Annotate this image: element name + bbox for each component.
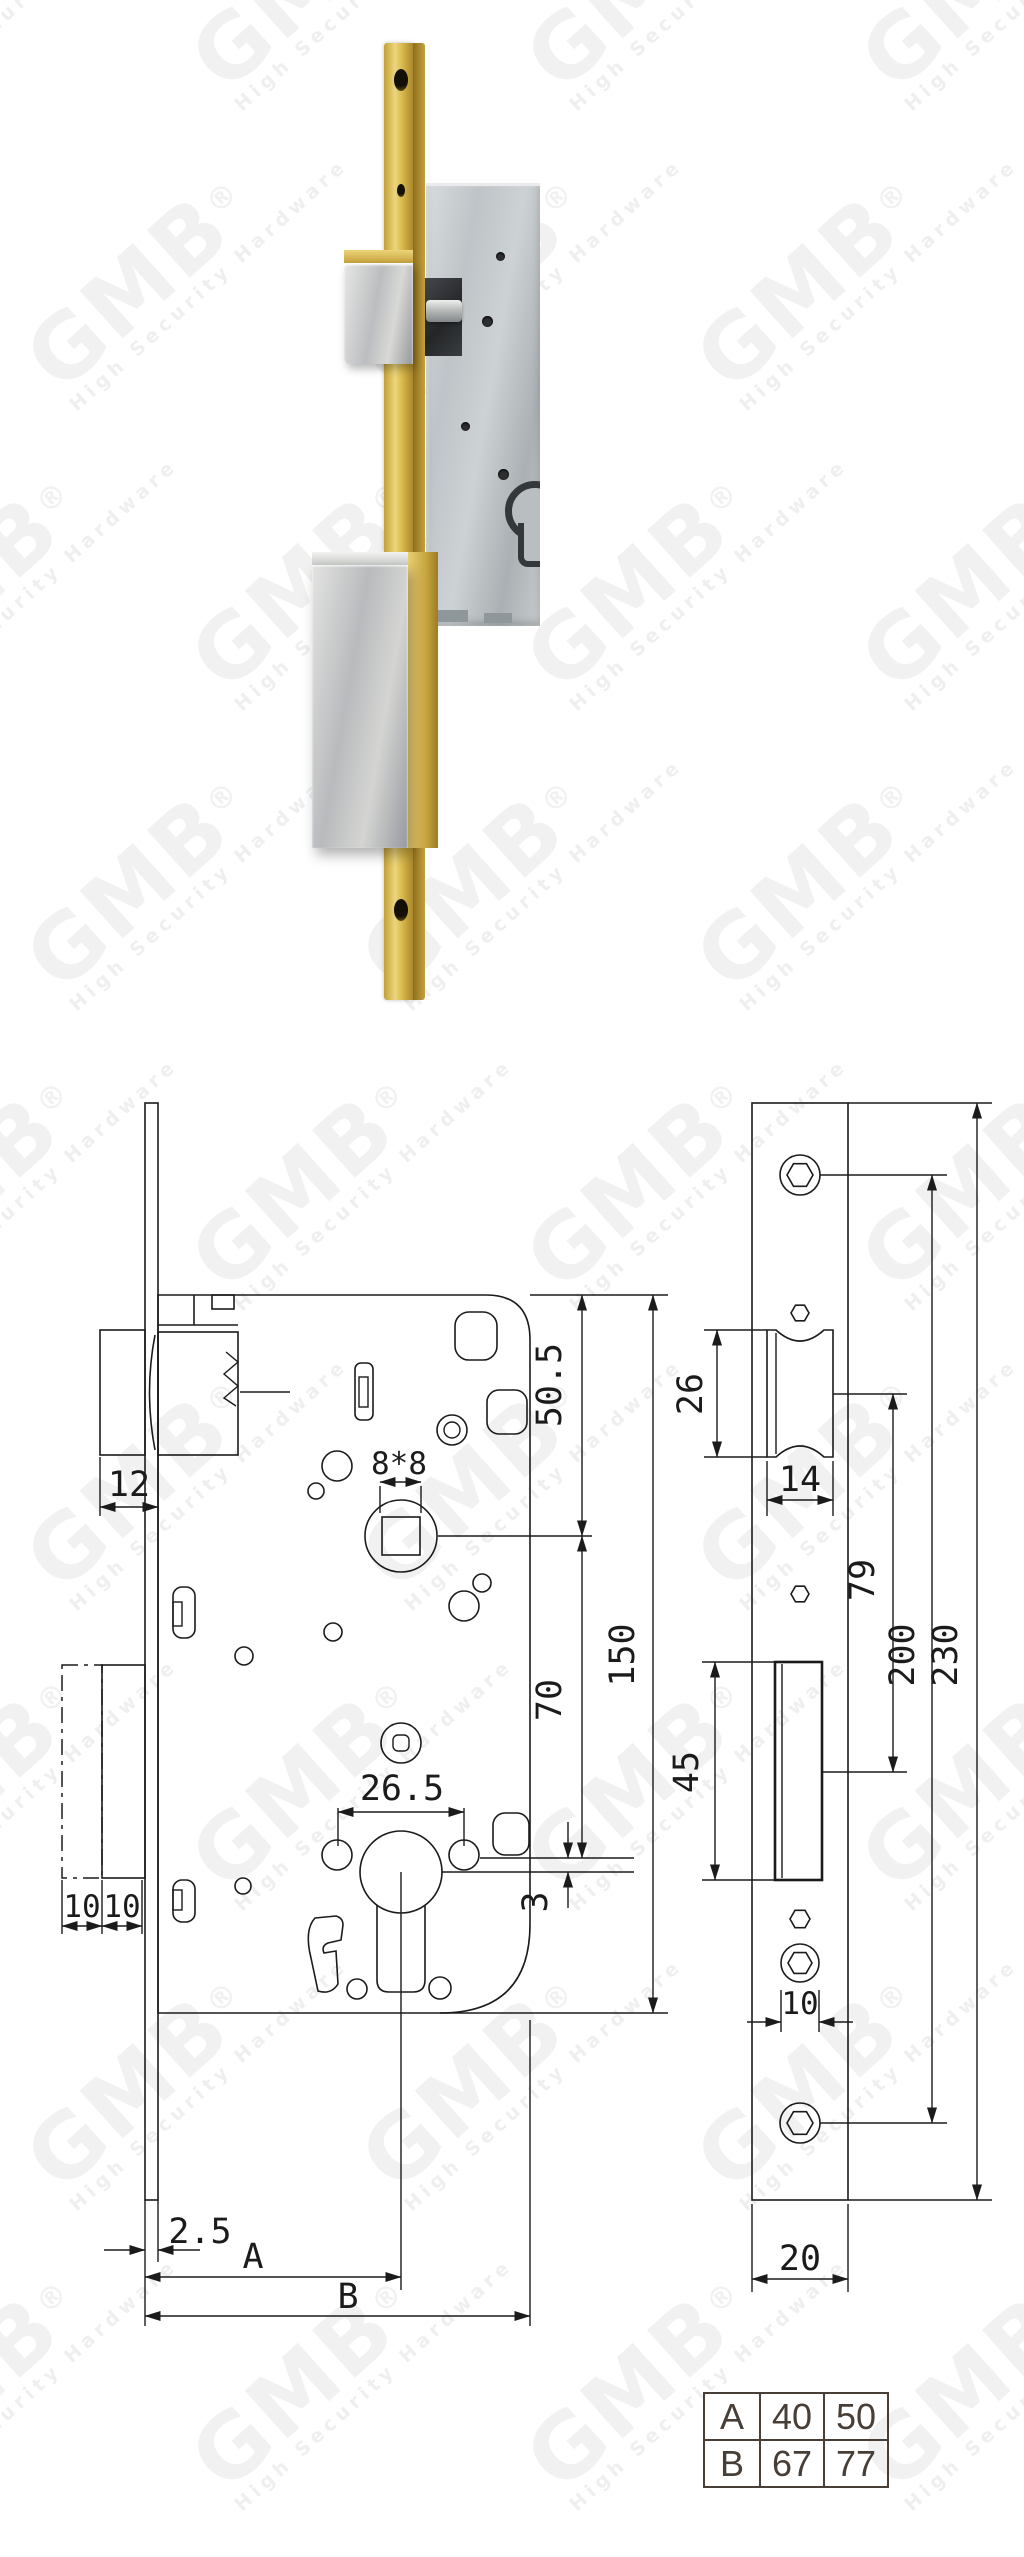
left-side-view: 12 8*8 50.5 70 150 3 <box>62 1103 668 2326</box>
keyhole-cutout <box>308 1916 343 1992</box>
case-holes <box>173 1312 529 1999</box>
follower-square <box>382 1517 420 1555</box>
left-view-dimensions: 12 8*8 50.5 70 150 3 <box>62 1295 668 2326</box>
technical-drawing: 12 8*8 50.5 70 150 3 <box>0 0 1024 2557</box>
dim-B-label: B <box>337 2277 358 2317</box>
spec-b-value-2: 77 <box>824 2440 888 2487</box>
right-view-dimensions: 26 14 45 79 200 230 <box>667 1103 992 2292</box>
dim-70-label: 70 <box>530 1679 570 1721</box>
dim-12-label: 12 <box>108 1465 150 1505</box>
dim-2_5-label: 2.5 <box>168 2212 231 2252</box>
faceplate-front-view: 26 14 45 79 200 230 <box>667 1103 992 2292</box>
dim-200-label: 200 <box>883 1623 923 1686</box>
spec-a-value-2: 50 <box>824 2393 888 2440</box>
deadbolt-side-view <box>62 1665 145 1878</box>
dim-10b-label: 10 <box>103 1889 140 1925</box>
dim-8x8-label: 8*8 <box>371 1446 427 1482</box>
dim-45-label: 45 <box>667 1751 707 1793</box>
cylinder-screw-hole-left <box>322 1840 352 1870</box>
catalog-page: GMB®High Security HardwareGMB®High Secur… <box>0 0 1024 2557</box>
dim-50_5-label: 50.5 <box>530 1343 570 1427</box>
dim-150-label: 150 <box>603 1623 643 1686</box>
dim-A-label: A <box>242 2237 263 2277</box>
spec-a-label: A <box>704 2393 760 2440</box>
screw-hole-top <box>780 1155 820 1195</box>
spec-table: A 40 50 B 67 77 <box>703 2392 889 2488</box>
faceplate-front-outline <box>752 1103 848 2200</box>
dim-10a-label: 10 <box>63 1889 100 1925</box>
dim-14-label: 14 <box>779 1460 821 1500</box>
dim-26_5-label: 26.5 <box>360 1769 444 1809</box>
follower-circle <box>365 1500 437 1572</box>
lock-case-outline <box>158 1295 530 2013</box>
dim-230-label: 230 <box>926 1623 966 1686</box>
dim-26-label: 26 <box>671 1373 711 1415</box>
dim-10-label: 10 <box>781 1986 818 2022</box>
table-row: A 40 50 <box>704 2393 888 2440</box>
latch-mechanism <box>100 1295 290 1455</box>
faceplate-edge-view <box>145 1103 158 2200</box>
spec-b-label: B <box>704 2440 760 2487</box>
table-row: B 67 77 <box>704 2440 888 2487</box>
screw-hole-bottom <box>780 2103 820 2143</box>
dim-79-label: 79 <box>843 1559 883 1601</box>
spec-a-value-1: 40 <box>760 2393 824 2440</box>
dim-20-label: 20 <box>779 2239 821 2279</box>
fixing-ring-hole <box>781 1944 819 1982</box>
latch-bolt-front <box>767 1330 833 1457</box>
dim-3-label: 3 <box>516 1891 556 1912</box>
spec-b-value-1: 67 <box>760 2440 824 2487</box>
